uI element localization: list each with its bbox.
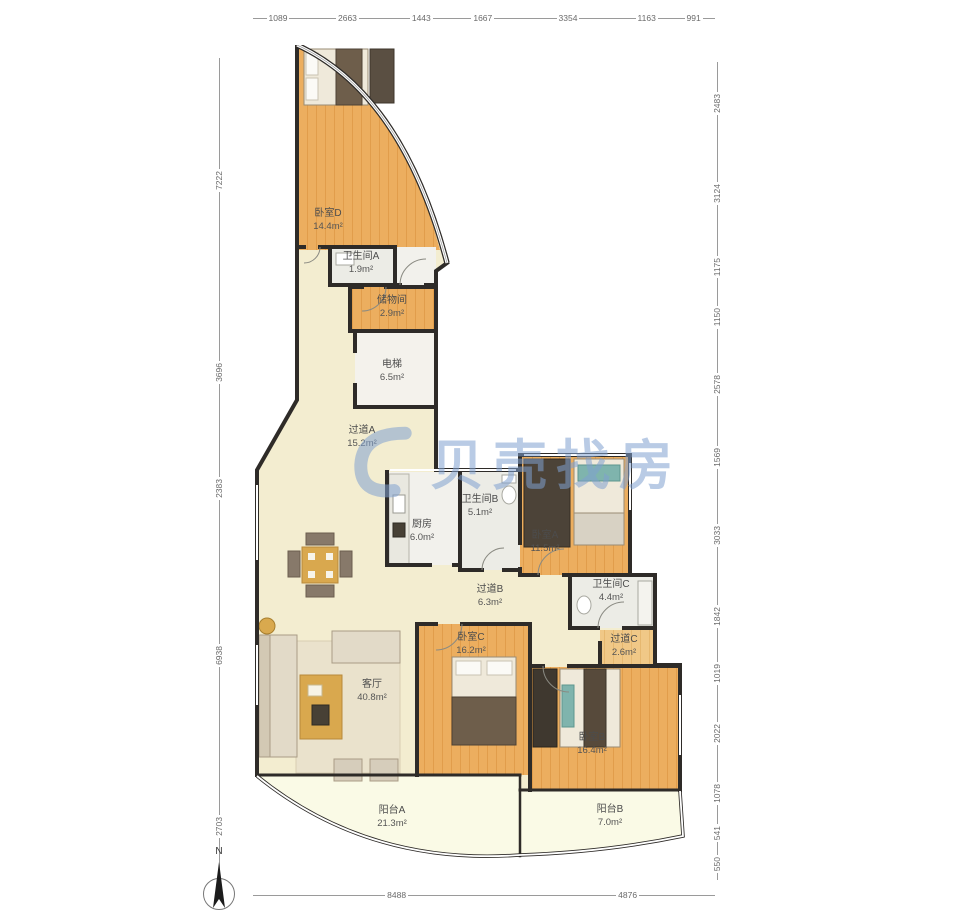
- room-label-hallway-c: 过道C2.6m²: [610, 633, 637, 659]
- north-label: N: [196, 846, 242, 857]
- ruler-segment: 1667: [451, 14, 515, 23]
- ruler-dimension-value: 541: [713, 824, 722, 842]
- ruler-dimension-value: 3124: [713, 182, 722, 205]
- ruler-dimension-value: 3696: [215, 361, 224, 384]
- ruler-dimension-value: 3354: [557, 14, 580, 23]
- room-label-storage: 储物间2.9m²: [377, 294, 407, 320]
- room-label-bathroom-a: 卫生间A1.9m²: [343, 250, 380, 276]
- room-label-elevator: 电梯6.5m²: [380, 358, 404, 384]
- dimension-ruler-right: 2483312411751150257815693033184210192022…: [711, 62, 723, 880]
- ruler-dimension-value: 1150: [713, 306, 722, 328]
- ruler-dimension-value: 1019: [713, 662, 722, 685]
- room-label-kitchen: 厨房6.0m²: [410, 518, 434, 544]
- ruler-segment: 3124: [713, 144, 722, 242]
- ruler-segment: 2663: [303, 14, 392, 23]
- floorplan-drawing: [240, 45, 700, 875]
- ruler-dimension-value: 1078: [713, 782, 722, 805]
- ruler-dimension-value: 2483: [713, 92, 722, 115]
- ruler-dimension-value: 1443: [410, 14, 433, 23]
- room-label-hallway-b: 过道B6.3m²: [477, 583, 504, 609]
- ruler-dimension-value: 550: [713, 855, 722, 873]
- north-arrow-icon: [196, 858, 242, 916]
- ruler-dimension-value: 7222: [215, 169, 224, 192]
- ruler-dimension-value: 2383: [215, 477, 224, 500]
- ruler-segment: 3354: [515, 14, 621, 23]
- ruler-segment: 3696: [215, 304, 224, 441]
- ruler-dimension-value: 3033: [713, 524, 722, 547]
- ruler-dimension-value: 1842: [713, 605, 722, 628]
- room-label-bathroom-c: 卫生间C4.4m²: [592, 578, 629, 604]
- ruler-dimension-value: 2663: [336, 14, 359, 23]
- dimension-ruler-bottom: 84884876: [253, 889, 715, 901]
- room-label-bedroom-b: 卧室B16.4m²: [577, 731, 607, 757]
- ruler-segment: 7222: [215, 58, 224, 304]
- room-label-bathroom-b: 卫生间B5.1m²: [462, 493, 499, 519]
- ruler-segment: 3033: [713, 488, 722, 584]
- room-label-balcony-b: 阳台B7.0m²: [597, 803, 624, 829]
- ruler-segment: 6938: [215, 537, 224, 774]
- ruler-segment: 550: [713, 849, 722, 880]
- ruler-dimension-value: 2022: [713, 722, 722, 745]
- ruler-segment: 1443: [392, 14, 451, 23]
- dimension-ruler-top: 108926631443166733541163991: [253, 12, 715, 24]
- ruler-dimension-value: 1175: [713, 256, 722, 278]
- ruler-segment: 2483: [713, 62, 722, 144]
- ruler-segment: 2383: [215, 441, 224, 537]
- floorplan-canvas: 卧室D14.4m² 卫生间A1.9m² 储物间2.9m² 电梯6.5m² 过道A…: [240, 45, 700, 875]
- ruler-segment: 1019: [713, 650, 722, 697]
- room-label-balcony-a: 阳台A21.3m²: [377, 804, 407, 830]
- ruler-segment: 541: [713, 818, 722, 849]
- room-label-bedroom-d: 卧室D14.4m²: [313, 207, 343, 233]
- ruler-dimension-value: 2578: [713, 373, 722, 396]
- ruler-segment: 1569: [713, 427, 722, 488]
- ruler-dimension-value: 2703: [215, 815, 224, 838]
- ruler-segment: 991: [672, 14, 715, 23]
- room-label-living-room: 客厅40.8m²: [357, 678, 387, 704]
- room-label-hallway-a: 过道A15.2m²: [347, 424, 377, 450]
- ruler-segment: 4876: [540, 891, 715, 900]
- room-label-bedroom-a: 卧室A11.5m²: [531, 529, 560, 555]
- ruler-segment: 1842: [713, 583, 722, 650]
- ruler-segment: 1175: [713, 242, 722, 292]
- ruler-segment: 8488: [253, 891, 540, 900]
- ruler-dimension-value: 1163: [636, 14, 658, 23]
- ruler-segment: 1078: [713, 769, 722, 818]
- ruler-segment: 1150: [713, 293, 722, 343]
- ruler-dimension-value: 6938: [215, 644, 224, 667]
- ruler-dimension-value: 8488: [385, 891, 408, 900]
- ruler-segment: 1163: [621, 14, 672, 23]
- compass-north-indicator: N: [196, 846, 242, 921]
- floorplan-page: { "watermark": { "text": "贝壳找房", "color"…: [0, 0, 960, 918]
- ruler-dimension-value: 1569: [713, 446, 722, 469]
- ruler-dimension-value: 1089: [267, 14, 290, 23]
- ruler-segment: 2578: [713, 342, 722, 427]
- ruler-dimension-value: 4876: [616, 891, 639, 900]
- ruler-segment: 1089: [253, 14, 303, 23]
- ruler-dimension-value: 991: [685, 14, 703, 23]
- room-label-bedroom-c: 卧室C16.2m²: [456, 631, 486, 657]
- ruler-dimension-value: 1667: [471, 14, 494, 23]
- dimension-ruler-left: 72223696238369382703: [213, 58, 225, 880]
- ruler-segment: 2022: [713, 697, 722, 768]
